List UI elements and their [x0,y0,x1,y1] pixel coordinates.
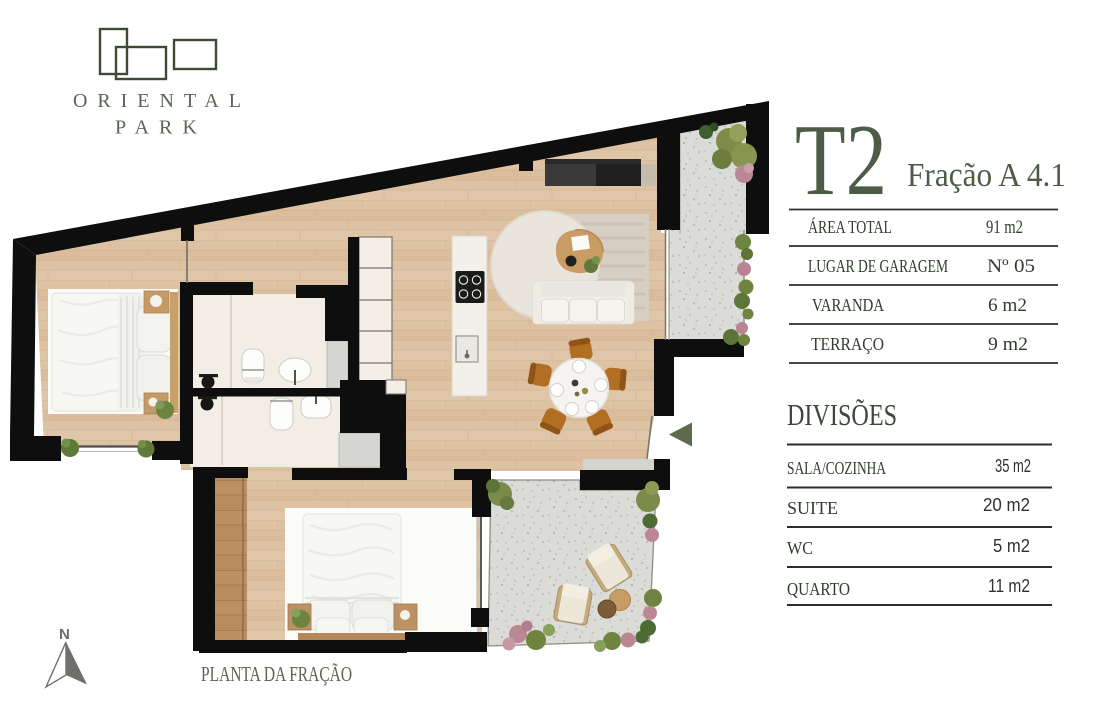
svg-text:N: N [59,626,70,643]
svg-text:TERRAÇO: TERRAÇO [811,334,884,354]
svg-text:SALA/COZINHA: SALA/COZINHA [787,458,886,478]
svg-text:6 m2: 6 m2 [988,295,1027,316]
svg-text:Nº 05: Nº 05 [987,256,1035,277]
svg-text:9 m2: 9 m2 [988,334,1028,355]
svg-text:35 m2: 35 m2 [995,456,1031,476]
svg-text:Fração A 4.1: Fração A 4.1 [907,157,1066,194]
svg-text:11 m2: 11 m2 [988,576,1030,596]
svg-text:20 m2: 20 m2 [983,495,1030,515]
svg-text:SUITE: SUITE [787,498,838,518]
svg-text:WC: WC [787,538,813,558]
svg-text:DIVISÕES: DIVISÕES [787,397,897,432]
svg-text:5 m2: 5 m2 [993,536,1030,556]
svg-text:91 m2: 91 m2 [986,217,1023,238]
svg-text:QUARTO: QUARTO [787,579,850,599]
svg-text:T2: T2 [795,104,887,217]
svg-text:ÁREA TOTAL: ÁREA TOTAL [808,216,892,237]
svg-text:LUGAR DE GARAGEM: LUGAR DE GARAGEM [808,256,948,276]
svg-text:VARANDA: VARANDA [812,295,884,315]
svg-text:PLANTA DA FRAÇÃO: PLANTA DA FRAÇÃO [201,662,352,686]
